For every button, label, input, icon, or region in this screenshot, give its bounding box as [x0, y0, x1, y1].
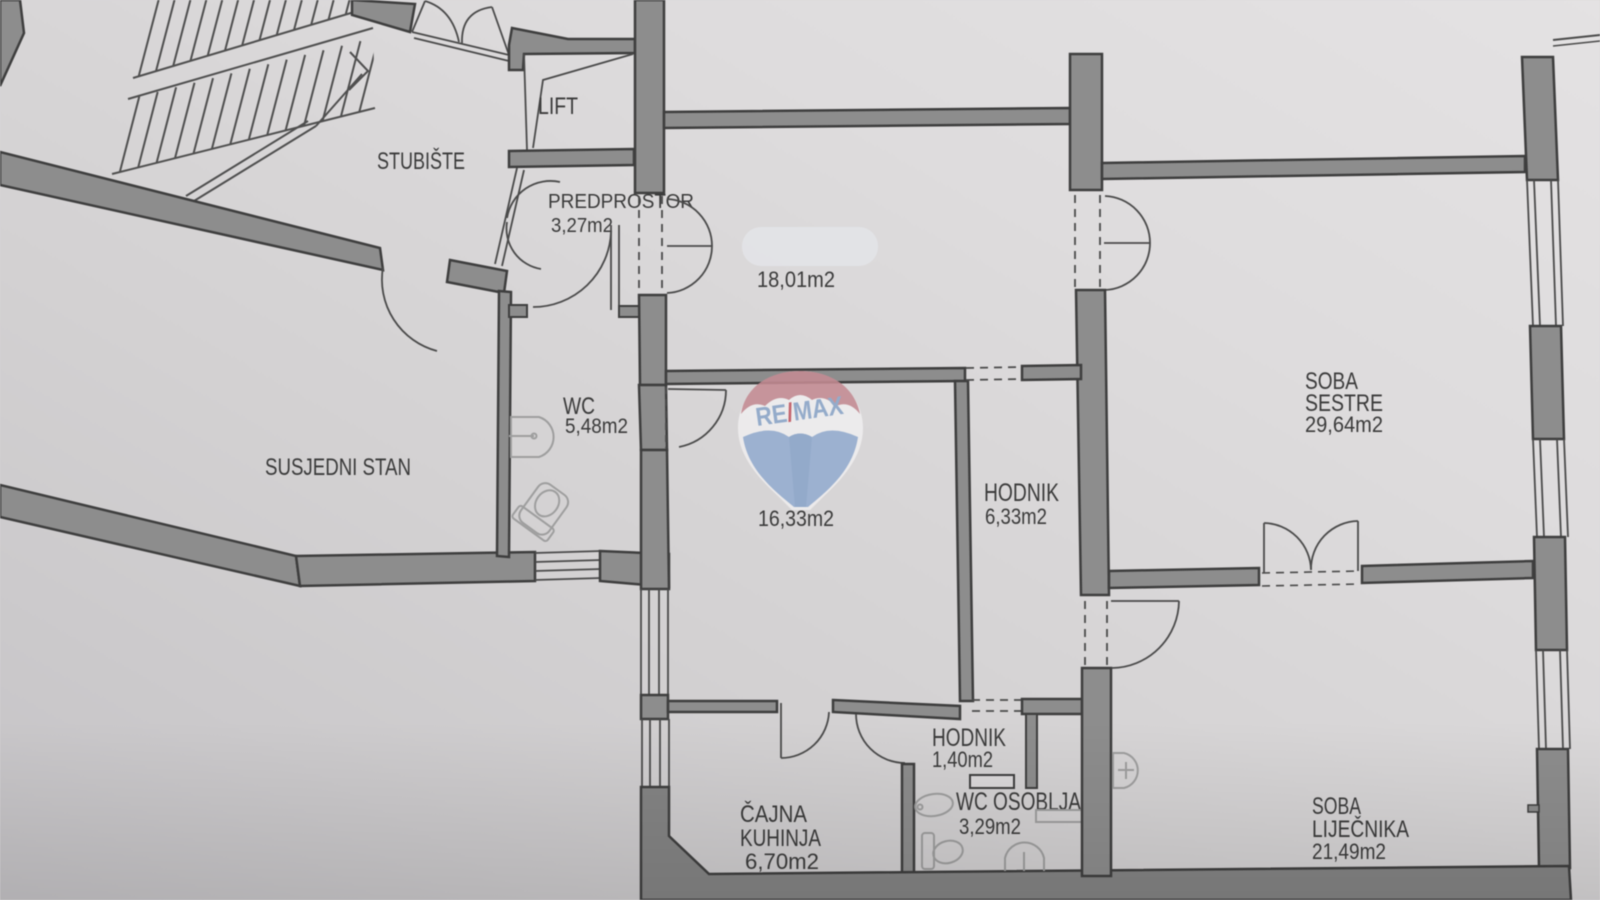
svg-text:18,01m2: 18,01m2 [757, 267, 835, 292]
svg-text:HODNIK: HODNIK [984, 479, 1059, 507]
svg-text:STUBIŠTE: STUBIŠTE [377, 147, 465, 175]
svg-text:29,64m2: 29,64m2 [1305, 412, 1383, 437]
svg-text:SUSJEDNI STAN: SUSJEDNI STAN [265, 454, 411, 481]
svg-text:3,27m2: 3,27m2 [551, 215, 613, 237]
svg-text:PREDPROSTOR: PREDPROSTOR [548, 191, 694, 213]
svg-text:6,33m2: 6,33m2 [985, 504, 1047, 529]
svg-text:5,48m2: 5,48m2 [565, 415, 628, 438]
svg-text:16,33m2: 16,33m2 [758, 506, 834, 531]
svg-text:LIFT: LIFT [538, 93, 578, 120]
